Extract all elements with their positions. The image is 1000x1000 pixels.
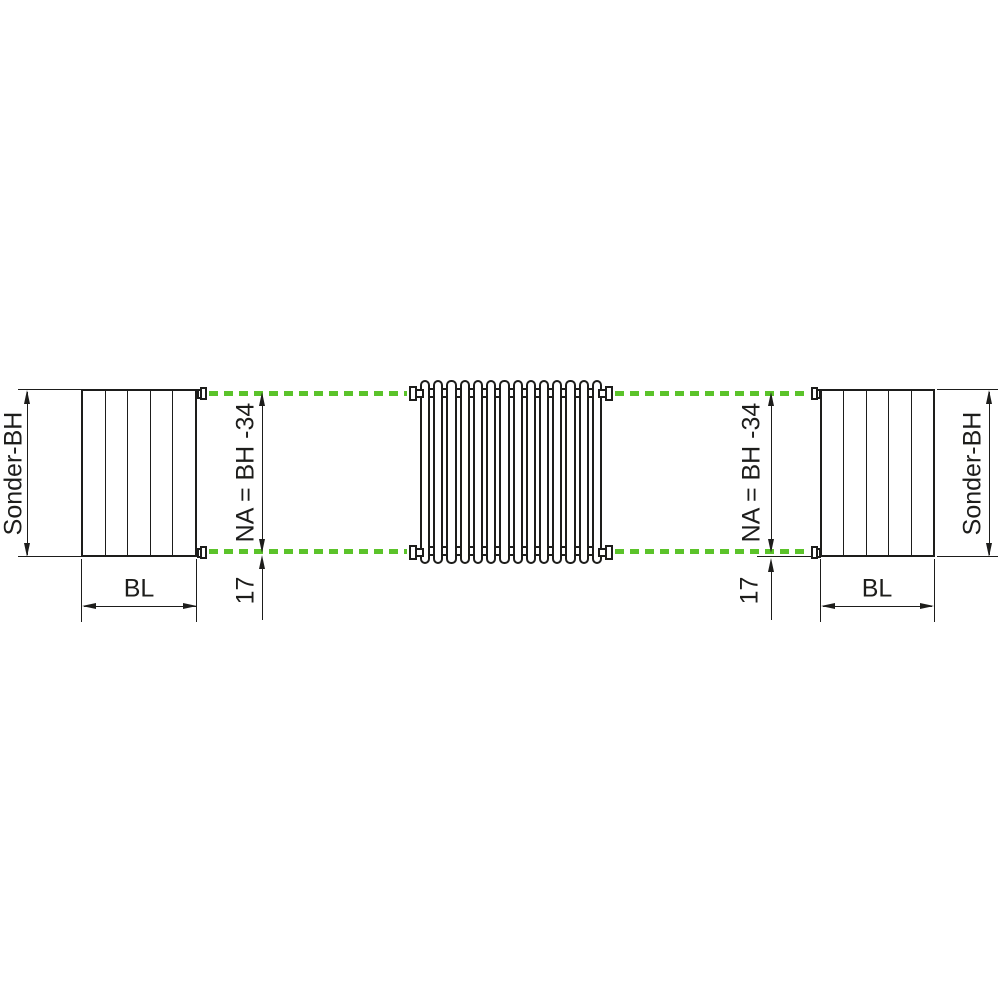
connection-stub-top-right-view [811,387,818,400]
arrowhead-down-icon [259,539,265,553]
arrowhead-up-icon [259,392,265,406]
extension-line-bl-left-b [196,559,197,622]
arrowhead-down-icon [986,543,992,557]
radiator-dimension-diagram: Sonder-BH BL NA = BH -34 17 NA = BH -34 … [0,0,1000,1000]
label-na-formula-right: NA = BH -34 [732,452,772,492]
axis-dashed-line-bottom-right [615,549,809,554]
label-sonder-bh-left: Sonder-BH [0,453,34,493]
arrowhead-left-icon [821,603,835,609]
dimension-line-bl-left [84,606,196,607]
flange-bottom-right [605,545,613,560]
arrowhead-up-icon [768,392,774,406]
label-bl-left: BL [124,577,155,602]
extension-line-bl-left-a [81,559,82,622]
radiator-tube [513,380,523,564]
radiator-tube [539,380,549,564]
flange-top-left [409,386,417,401]
axis-dashed-line-top-left [209,391,407,396]
side-view-panel [173,391,195,555]
side-view-panel [83,391,106,555]
connection-stub-top-left-view [200,387,207,400]
radiator-tube [460,380,470,564]
radiator-tube [579,380,589,564]
flange-top-right [605,386,613,401]
radiator-tube [592,380,602,564]
connection-stub-bottom-left-view [200,546,207,559]
label-na-formula-left: NA = BH -34 [226,452,266,492]
side-view-panel [889,391,911,555]
side-view-panel [106,391,129,555]
label-sonder-bh-right: Sonder-BH [953,453,993,493]
arrowhead-right-icon [920,603,934,609]
side-view-panel [151,391,174,555]
connection-stub-bottom-right-view [811,546,818,559]
side-view-panel [844,391,866,555]
radiator-tube [526,380,536,564]
axis-dashed-line-top-right [615,391,809,396]
arrowhead-up-icon [986,390,992,404]
radiator-front-view [420,380,602,564]
arrowhead-right-icon [183,603,197,609]
side-view-left [81,389,197,557]
flange-bottom-left [409,545,417,560]
side-view-right [820,389,935,557]
radiator-tube [446,380,456,564]
label-bl-right: BL [862,577,893,602]
extension-line-bl-right-b [934,559,935,622]
side-view-panel [822,391,844,555]
side-view-panel [912,391,933,555]
arrowhead-left-icon [82,603,96,609]
dimension-tail-17-right [771,563,772,620]
extension-line-bl-right-a [820,559,821,622]
side-view-panel [128,391,151,555]
radiator-tube [552,380,562,564]
radiator-tube [473,380,483,564]
radiator-tube [486,380,496,564]
arrowhead-down-icon [768,539,774,553]
arrowhead-up-icon [24,390,30,404]
radiator-tube [433,380,443,564]
label-17-right: 17 [730,570,770,610]
side-view-panel [867,391,889,555]
label-17-left: 17 [226,570,266,610]
dimension-line-bl-right [823,606,932,607]
radiator-tube [420,380,430,564]
axis-dashed-line-bottom-left [209,549,407,554]
radiator-tube [565,380,575,564]
arrowhead-down-icon [24,543,30,557]
radiator-tube [499,380,509,564]
